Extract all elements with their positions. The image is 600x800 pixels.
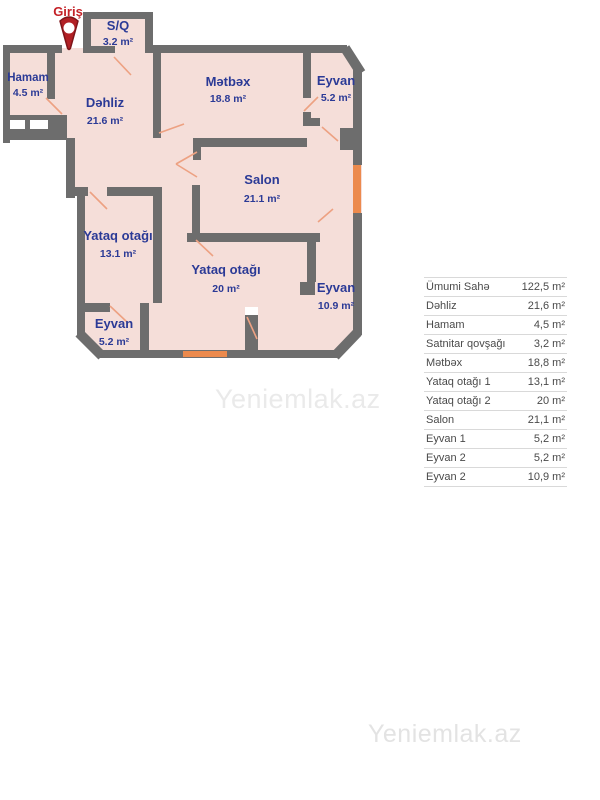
page: Yeniemlak.az [0,0,600,800]
room-label-metbex: Mətbəx [206,74,252,89]
room-area-eyvan-top: 5.2 m² [321,92,352,104]
room-area-sq: 3.2 m² [103,36,134,48]
row-label: Salon [426,414,454,427]
row-label: Eyvan 2 [426,452,466,465]
room-label-sq: S/Q [107,18,129,33]
room-area-yataq1: 13.1 m² [100,248,137,260]
area-table-row: Eyvan 2 10,9 m² [424,468,567,487]
room-area-eyvan-bl: 5.2 m² [99,336,130,348]
row-value: 5,2 m² [534,433,565,446]
window-hamam [30,120,48,129]
wall [187,233,320,242]
row-label: Yataq otağı 1 [426,376,491,389]
wall [303,118,320,126]
row-label: Eyvan 1 [426,433,466,446]
area-table-row: Hamam 4,5 m² [424,316,567,335]
room-label-eyvan-top: Eyvan [317,73,355,88]
area-table-row: Ümumi Sahə 122,5 m² [424,278,567,297]
area-table-row: Eyvan 1 5,2 m² [424,430,567,449]
row-label: Ümumi Sahə [426,281,490,294]
wall [74,187,88,196]
row-label: Hamam [426,319,465,332]
row-value: 4,5 m² [534,319,565,332]
wall [145,45,347,53]
room-area-dehliz: 21.6 m² [87,115,124,127]
row-value: 18,8 m² [528,357,565,370]
wall [303,52,311,98]
room-label-salon: Salon [244,172,279,187]
area-table-row: Satnitar qovşağı 3,2 m² [424,335,567,354]
wall [77,303,110,312]
wall [192,185,200,233]
wall [77,196,85,336]
room-label-hamam: Hamam [7,72,49,84]
wall [193,138,201,160]
area-table-row: Yataq otağı 1 13,1 m² [424,373,567,392]
area-table-row: Salon 21,1 m² [424,411,567,430]
area-table-row: Mətbəx 18,8 m² [424,354,567,373]
row-value: 20 m² [537,395,565,408]
row-label: Eyvan 2 [426,471,466,484]
wall [66,138,75,198]
room-label-yataq2: Yataq otağı [191,262,260,277]
row-value: 10,9 m² [528,471,565,484]
row-value: 122,5 m² [522,281,565,294]
wall-notch [245,307,258,315]
row-value: 5,2 m² [534,452,565,465]
room-label-yataq1: Yataq otağı [83,228,152,243]
room-label-eyvan-br: Eyvan [317,280,355,295]
room-label-eyvan-bl: Eyvan [95,316,133,331]
row-value: 3,2 m² [534,338,565,351]
wall [153,187,162,303]
room-area-metbex: 18.8 m² [210,93,247,105]
area-table-row: Yataq otağı 2 20 m² [424,392,567,411]
room-area-salon: 21.1 m² [244,193,281,205]
floor-plan: Giriş S/Q 3.2 m² Hamam 4.5 m² Dəhliz 21.… [0,0,380,380]
wall [245,315,258,352]
wall [153,45,161,138]
row-label: Yataq otağı 2 [426,395,491,408]
window-hamam [10,120,25,129]
area-table-row: Eyvan 2 5,2 m² [424,449,567,468]
window-bottom [183,351,227,357]
entrance-pin-dot [64,23,75,34]
wall [307,242,316,282]
room-label-dehliz: Dəhliz [86,95,125,110]
window-right [353,165,361,213]
watermark-middle: Yeniemlak.az [215,384,381,415]
wall [140,303,149,358]
room-area-hamam: 4.5 m² [13,87,44,99]
row-value: 21,1 m² [528,414,565,427]
wall [3,45,62,53]
row-value: 13,1 m² [528,376,565,389]
wall [340,128,353,150]
room-area-eyvan-br: 10.9 m² [318,300,355,312]
area-table: Ümumi Sahə 122,5 m² Dəhliz 21,6 m² Hamam… [424,277,567,487]
wall [195,138,307,147]
row-value: 21,6 m² [528,300,565,313]
wall [353,213,362,335]
row-label: Satnitar qovşağı [426,338,506,351]
watermark-bottom: Yeniemlak.az [368,720,522,749]
area-table-row: Dəhliz 21,6 m² [424,297,567,316]
wall [300,282,315,295]
row-label: Mətbəx [426,357,462,370]
room-area-yataq2: 20 m² [212,283,240,295]
row-label: Dəhliz [426,300,457,313]
